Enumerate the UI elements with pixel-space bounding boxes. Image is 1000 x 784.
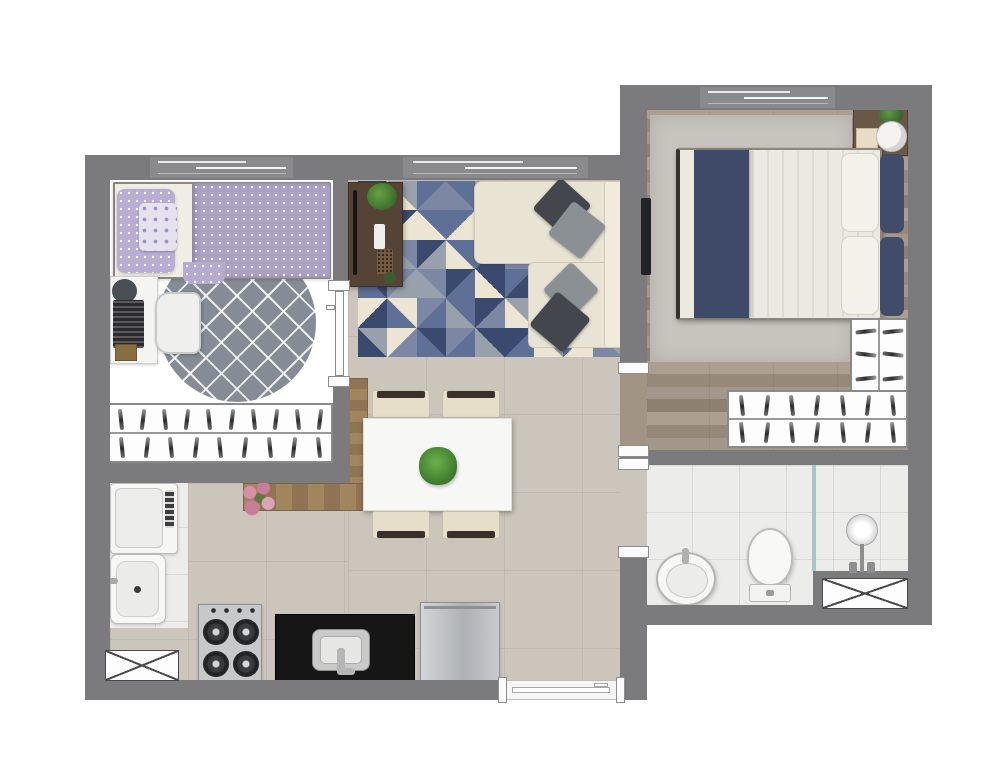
hanger-icon: [814, 395, 821, 416]
wall-right: [908, 85, 932, 625]
rug-triangle-tile: [446, 240, 475, 269]
hanger-icon: [251, 408, 257, 429]
bedroom-door-handle: [326, 305, 335, 310]
entrance-jamb-right: [616, 677, 625, 703]
master-pillow-2: [841, 236, 879, 315]
bathroom-door-jamb-bottom: [618, 546, 649, 558]
bathroom-door-opening[interactable]: [620, 470, 647, 546]
master-bedroom-window: [700, 87, 835, 108]
shaft-box-laundry: [105, 650, 179, 681]
entrance-door-handle: [594, 683, 608, 687]
hanger-icon: [840, 395, 846, 416]
master-door-opening[interactable]: [620, 374, 647, 445]
kitchen-faucet-spout: [337, 668, 355, 675]
rug-triangle-tile: [387, 328, 416, 357]
stove-knobs: [207, 608, 255, 613]
dining-chair-top-left: [372, 390, 430, 418]
hanger-icon: [168, 436, 174, 457]
floor-plan: [0, 0, 1000, 784]
console-plant: [367, 183, 397, 210]
hanger-icon: [291, 436, 298, 457]
washer-lid: [115, 488, 163, 548]
rug-triangle-tile: [417, 269, 446, 298]
rug-triangle-tile: [475, 269, 504, 298]
speaker-box: [377, 249, 393, 274]
hanger-icon: [855, 329, 876, 335]
sofa-backrest: [604, 182, 621, 347]
tub-drain: [134, 586, 141, 593]
hanger-icon: [184, 408, 191, 429]
bathroom-door-jamb-top: [618, 458, 649, 470]
bedroom-window: [150, 157, 293, 178]
master-closet-long: [727, 390, 908, 448]
hanger-icon: [193, 436, 200, 457]
shower-pipe: [860, 544, 864, 572]
wall-bedroom-bottom: [85, 463, 350, 483]
dining-chair-bottom-left: [372, 511, 430, 539]
hanger-icon: [814, 422, 821, 443]
table-plant: [419, 447, 457, 485]
hanger-icon: [855, 375, 876, 381]
hanger-icon: [890, 422, 896, 443]
fridge-handle: [424, 606, 496, 609]
hanger-icon: [118, 408, 124, 429]
hanger-icon: [739, 422, 745, 443]
desk-chair: [155, 292, 201, 354]
bedroom-door-jamb-top: [328, 280, 350, 291]
master-closet-side: [850, 318, 908, 392]
hanger-icon: [764, 422, 771, 443]
hanger-icon: [162, 408, 168, 429]
entrance-door-leaf: [512, 687, 610, 693]
bedroom-door-leaf[interactable]: [335, 291, 344, 376]
headboard-cushion-2: [880, 237, 904, 316]
hanger-icon: [882, 329, 903, 335]
hanger-icon: [882, 352, 903, 359]
rug-triangle-tile: [417, 210, 446, 239]
hanger-icon: [739, 395, 745, 416]
dining-chair-bottom-right: [442, 511, 500, 539]
wall-bedroom-right-upper: [333, 180, 348, 290]
rug-triangle-tile: [475, 298, 504, 327]
living-room-window: [403, 157, 588, 178]
hanger-icon: [206, 408, 212, 429]
round-side-table: [876, 121, 907, 152]
hanger-icon: [266, 436, 272, 457]
hanger-icon: [789, 422, 795, 443]
rug-triangle-tile: [475, 328, 504, 357]
basin-faucet: [682, 548, 689, 564]
entrance-jamb-left: [498, 677, 507, 703]
hanger-icon: [882, 375, 903, 381]
hanger-icon: [855, 352, 876, 359]
console-pot: [384, 272, 396, 284]
bedroom-wardrobe: [108, 403, 333, 463]
shower-partition: [812, 465, 816, 571]
hanger-icon: [242, 436, 249, 457]
hanger-icon: [119, 436, 125, 457]
stove: [198, 604, 262, 682]
rug-triangle-tile: [446, 181, 475, 210]
wall-bottom-a: [85, 680, 505, 700]
white-remote: [374, 224, 385, 249]
shower-knob-right: [867, 562, 875, 573]
rug-triangle-tile: [358, 298, 387, 327]
rug-triangle-tile: [387, 298, 416, 327]
hanger-icon: [295, 408, 301, 429]
hanger-icon: [764, 395, 771, 416]
wall-bathroom-top: [620, 450, 932, 465]
master-door-jamb-top: [618, 362, 649, 374]
accent-pillow: [139, 203, 177, 251]
rug-triangle-tile: [358, 328, 387, 357]
hanger-icon: [865, 395, 872, 416]
rug-triangle-tile: [446, 328, 475, 357]
remote-controls: [353, 190, 357, 275]
hanger-icon: [144, 436, 151, 457]
bed-runner: [694, 150, 749, 318]
master-pillow-1: [841, 153, 879, 232]
hanger-icon: [789, 395, 795, 416]
dining-chair-top-right: [442, 390, 500, 418]
gift-box: [115, 344, 137, 361]
toilet-flush-button: [766, 590, 774, 596]
rug-triangle-tile: [446, 298, 475, 327]
rug-triangle-tile: [417, 298, 446, 327]
rug-triangle-tile: [417, 328, 446, 357]
shaft-box-bathroom: [822, 578, 908, 609]
washer-panel: [165, 490, 174, 528]
fridge: [420, 602, 500, 683]
toilet-bowl: [747, 528, 793, 586]
shower-head: [846, 514, 878, 546]
laptop: [113, 300, 144, 348]
rug-triangle-tile: [417, 240, 446, 269]
hanger-icon: [272, 408, 279, 429]
washbasin-bowl: [666, 563, 708, 598]
hanger-icon: [890, 395, 896, 416]
headboard-cushion-1: [880, 154, 904, 233]
hanger-icon: [317, 408, 324, 429]
hanger-icon: [228, 408, 235, 429]
rug-triangle-tile: [446, 269, 475, 298]
hanger-icon: [840, 422, 846, 443]
wall-left: [85, 155, 110, 700]
hanger-icon: [865, 422, 872, 443]
shower-knob-left: [849, 562, 857, 573]
master-tv: [641, 198, 651, 275]
rug-triangle-tile: [446, 210, 475, 239]
duvet-fold: [183, 262, 225, 284]
rug-triangle-tile: [417, 181, 446, 210]
flower-vase: [236, 477, 282, 521]
hanger-icon: [140, 408, 147, 429]
hanger-icon: [217, 436, 223, 457]
bedroom-door-jamb-bottom: [328, 376, 350, 387]
hanger-icon: [316, 436, 322, 457]
master-door-jamb-bottom: [618, 445, 649, 457]
